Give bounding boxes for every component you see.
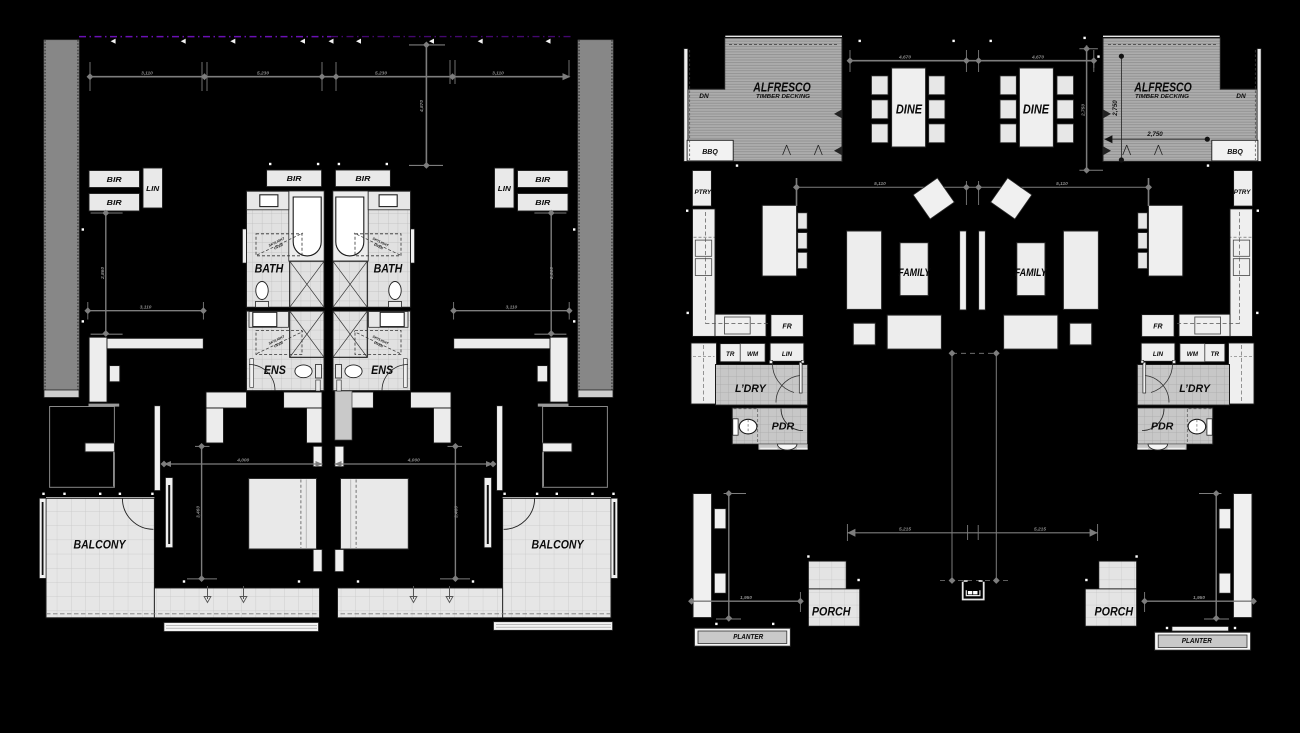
svg-text:LIN: LIN [498, 186, 512, 193]
svg-text:4,670: 4,670 [898, 54, 911, 60]
svg-text:ENS: ENS [371, 363, 393, 377]
svg-text:LIN: LIN [146, 186, 160, 193]
svg-text:DN: DN [699, 93, 709, 100]
svg-text:TR: TR [726, 351, 735, 358]
svg-text:DINE: DINE [896, 102, 923, 116]
svg-text:TR: TR [1211, 351, 1220, 358]
svg-text:TIMBER DECKING: TIMBER DECKING [756, 94, 811, 100]
svg-text:DN: DN [1236, 93, 1246, 100]
svg-text:BIR: BIR [107, 175, 123, 184]
svg-text:4,670: 4,670 [1031, 54, 1044, 60]
svg-text:4,870: 4,870 [419, 100, 425, 113]
svg-text:2,750: 2,750 [1081, 104, 1087, 117]
svg-text:5,215: 5,215 [899, 526, 911, 532]
svg-text:PDR: PDR [772, 421, 795, 433]
svg-text:FR: FR [782, 324, 791, 331]
svg-text:ALFRESCO: ALFRESCO [1133, 79, 1191, 94]
svg-text:BIR: BIR [355, 174, 371, 183]
svg-text:BIR: BIR [535, 175, 551, 184]
svg-text:PLANTER: PLANTER [733, 634, 763, 641]
svg-text:2,750: 2,750 [1146, 131, 1163, 138]
svg-text:FAMILY: FAMILY [1015, 267, 1048, 279]
svg-text:3,110: 3,110 [492, 70, 504, 76]
svg-text:3,110: 3,110 [506, 304, 518, 310]
svg-text:WM: WM [1187, 351, 1199, 358]
svg-text:PTRY: PTRY [1234, 189, 1251, 196]
svg-text:5,230: 5,230 [375, 70, 387, 76]
svg-text:BBQ: BBQ [702, 149, 718, 156]
svg-text:3,110: 3,110 [141, 70, 153, 76]
svg-text:FAMILY: FAMILY [898, 267, 931, 279]
svg-text:FR: FR [1153, 324, 1162, 331]
svg-text:ENS: ENS [264, 363, 286, 377]
svg-text:4,000: 4,000 [407, 458, 420, 464]
svg-text:4,000: 4,000 [236, 458, 249, 464]
svg-text:5,230: 5,230 [257, 70, 269, 76]
svg-text:BIR: BIR [107, 198, 123, 207]
svg-text:L’DRY: L’DRY [735, 383, 767, 395]
svg-text:5,215: 5,215 [1034, 526, 1046, 532]
svg-text:LIN: LIN [1153, 351, 1164, 358]
svg-text:BIR: BIR [535, 198, 551, 207]
svg-text:PORCH: PORCH [1095, 605, 1134, 619]
svg-text:TIMBER DECKING: TIMBER DECKING [1135, 94, 1190, 100]
svg-text:2,860: 2,860 [549, 267, 555, 280]
svg-text:BATH: BATH [374, 263, 403, 275]
svg-text:5,110: 5,110 [1056, 181, 1068, 187]
svg-text:L’DRY: L’DRY [1179, 383, 1211, 395]
svg-text:BALCONY: BALCONY [74, 538, 127, 552]
svg-text:BATH: BATH [255, 263, 284, 275]
svg-text:BALCONY: BALCONY [532, 538, 585, 552]
svg-text:5,110: 5,110 [874, 181, 886, 187]
svg-text:3,460: 3,460 [196, 506, 202, 518]
svg-text:1,950: 1,950 [1193, 595, 1205, 601]
svg-text:BIR: BIR [287, 174, 303, 183]
svg-text:PTRY: PTRY [695, 189, 712, 196]
svg-text:BBQ: BBQ [1227, 149, 1243, 156]
svg-text:2,750: 2,750 [1112, 100, 1119, 117]
svg-text:1,950: 1,950 [740, 595, 752, 601]
svg-text:3,460: 3,460 [453, 506, 459, 518]
svg-text:WM: WM [747, 351, 759, 358]
svg-text:DINE: DINE [1023, 102, 1050, 116]
svg-text:2,860: 2,860 [100, 267, 106, 280]
svg-text:PORCH: PORCH [812, 605, 851, 619]
svg-text:PLANTER: PLANTER [1182, 638, 1212, 645]
svg-text:LIN: LIN [782, 351, 793, 358]
svg-text:3,110: 3,110 [140, 304, 152, 310]
svg-text:ALFRESCO: ALFRESCO [752, 79, 810, 94]
